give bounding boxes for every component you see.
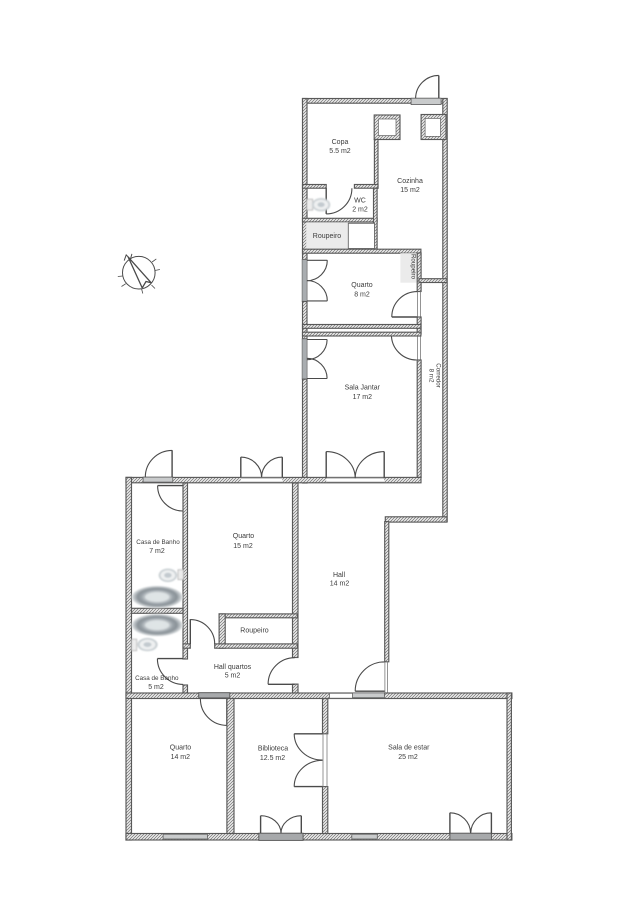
svg-text:Roupeiro: Roupeiro (313, 233, 342, 240)
svg-text:14 m2: 14 m2 (330, 581, 350, 588)
svg-text:15 m2: 15 m2 (233, 543, 253, 550)
svg-text:25 m2: 25 m2 (398, 754, 418, 761)
svg-text:Copa: Copa (332, 139, 349, 146)
svg-text:8 m2: 8 m2 (428, 369, 435, 383)
svg-text:Cozinha: Cozinha (397, 178, 423, 185)
svg-text:Roupeiro: Roupeiro (410, 254, 417, 280)
svg-text:5 m2: 5 m2 (225, 673, 241, 680)
svg-text:Hall quartos: Hall quartos (214, 664, 252, 671)
svg-text:7 m2: 7 m2 (149, 548, 165, 555)
svg-text:Casa de Banho: Casa de Banho (135, 675, 179, 682)
svg-text:Hall: Hall (333, 572, 346, 579)
svg-text:Casa de Banho: Casa de Banho (136, 539, 180, 546)
svg-text:WC: WC (354, 198, 366, 205)
svg-text:17 m2: 17 m2 (353, 394, 373, 401)
svg-text:5 m2: 5 m2 (148, 684, 164, 691)
svg-text:15 m2: 15 m2 (400, 187, 420, 194)
svg-text:5.5 m2: 5.5 m2 (329, 148, 351, 155)
svg-text:12.5 m2: 12.5 m2 (260, 755, 285, 762)
svg-text:Quarto: Quarto (170, 745, 192, 752)
svg-text:Sala Jantar: Sala Jantar (345, 385, 381, 392)
svg-text:Biblioteca: Biblioteca (258, 746, 288, 753)
svg-text:14 m2: 14 m2 (171, 754, 191, 761)
svg-text:8 m2: 8 m2 (354, 292, 370, 299)
svg-text:Sala de estar: Sala de estar (388, 745, 430, 752)
svg-text:Quarto: Quarto (233, 533, 255, 540)
svg-text:Quarto: Quarto (351, 282, 373, 289)
svg-text:2 m2: 2 m2 (352, 207, 368, 214)
svg-text:Roupeiro: Roupeiro (240, 628, 269, 635)
svg-text:Corredor: Corredor (435, 363, 442, 387)
